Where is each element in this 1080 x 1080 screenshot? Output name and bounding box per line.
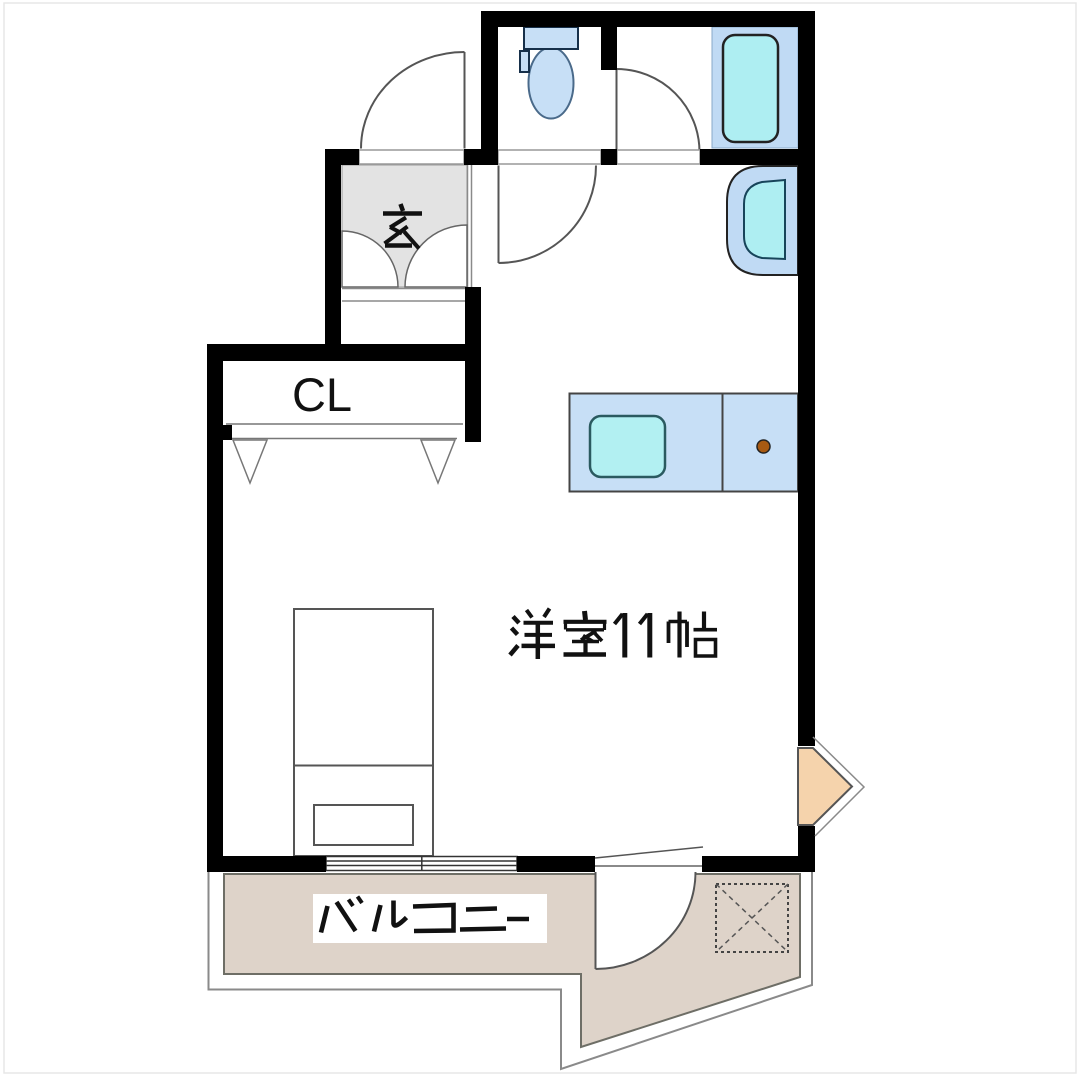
svg-text:CL: CL	[292, 368, 352, 421]
